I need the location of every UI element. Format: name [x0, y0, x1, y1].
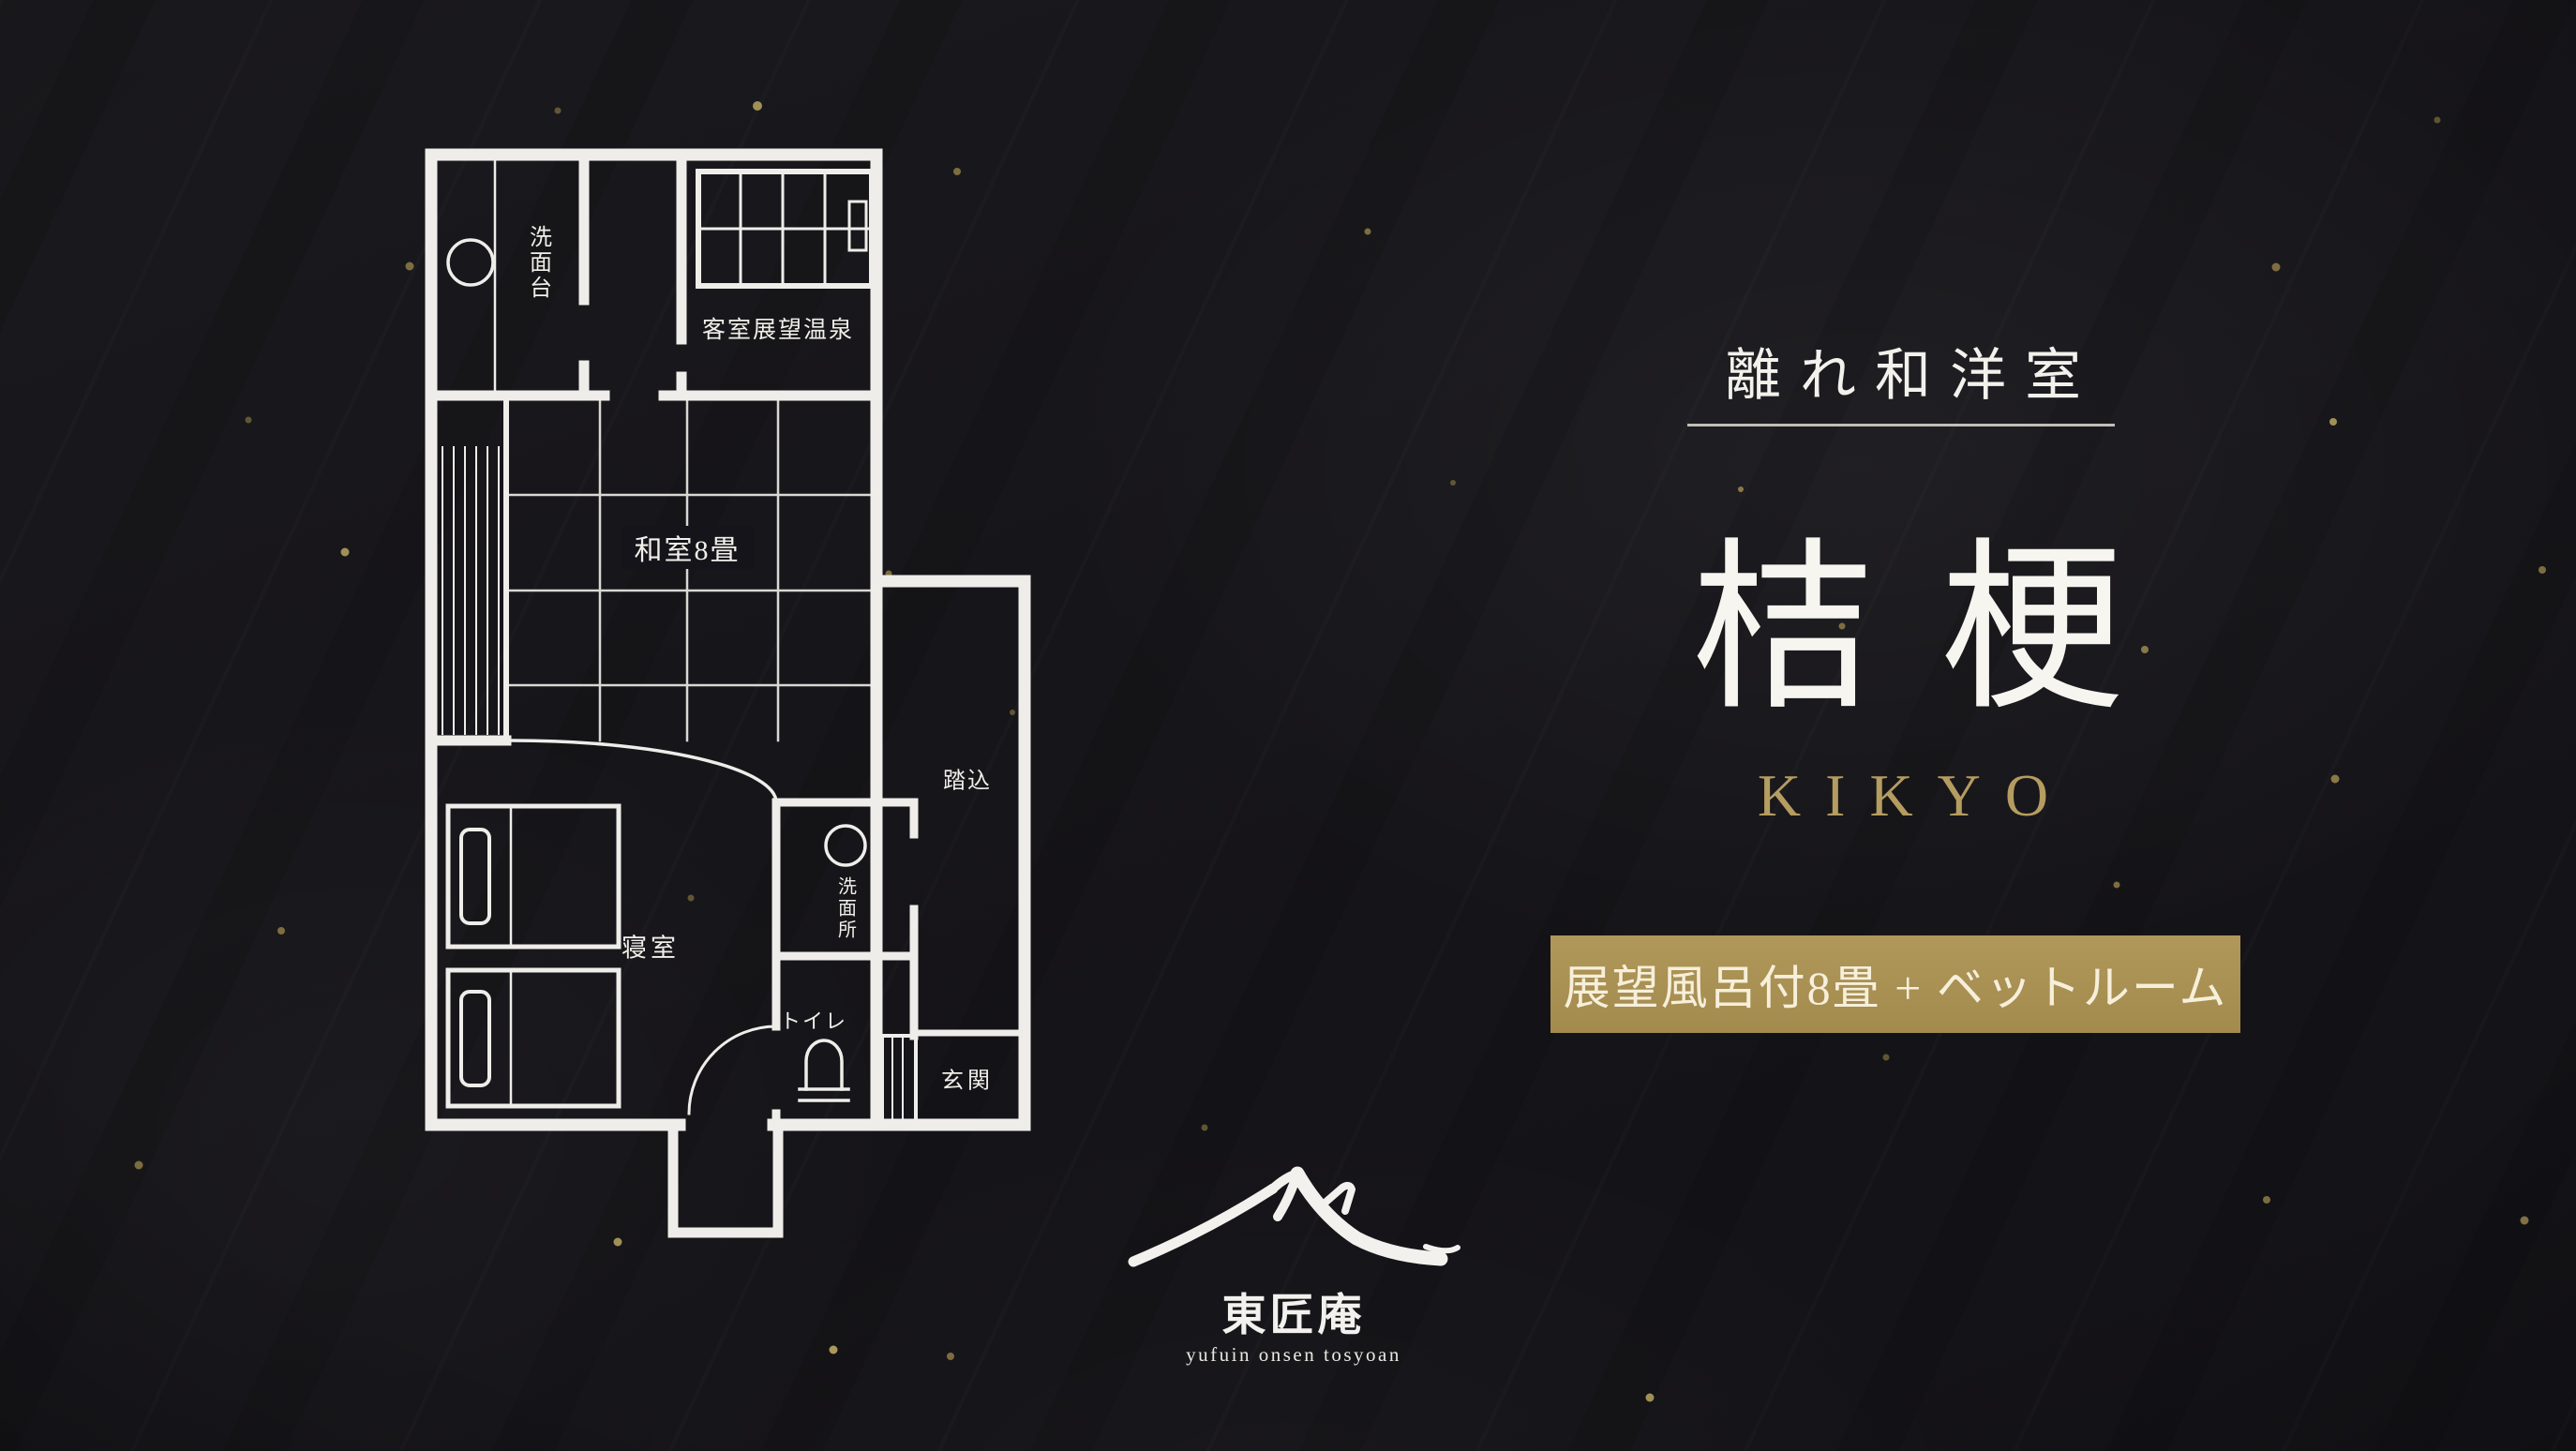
page-background: 洗面台 客室展望温泉 和室8畳 寝室 洗面所 トイレ 踏込 玄関 離れ和洋室 桔… — [0, 0, 2576, 1451]
amenity-badge-label: 展望風呂付8畳 + ベットルーム — [1564, 950, 2228, 1018]
sink-icon — [448, 240, 493, 285]
closet-strips — [431, 396, 506, 740]
label-toilet: トイレ — [780, 1005, 847, 1035]
floor-plan-drawing — [412, 131, 1031, 1247]
entry-wing-walls — [876, 581, 1025, 1125]
room-category: 離れ和洋室 — [1683, 330, 2123, 411]
brand-name-romaji: yufuin onsen tosyoan — [1153, 1343, 1434, 1367]
toilet-icon — [800, 1040, 848, 1100]
label-japanese-room: 和室8畳 — [635, 527, 741, 568]
porch-walls — [673, 1125, 778, 1233]
label-entrance: 玄関 — [941, 1062, 994, 1095]
brand-name-kanji: 東匠庵 — [1153, 1279, 1434, 1343]
mountain-logo-icon — [1120, 1155, 1467, 1281]
floor-plan: 洗面台 客室展望温泉 和室8畳 寝室 洗面所 トイレ 踏込 玄関 — [412, 131, 1031, 1247]
label-entry-step: 踏込 — [943, 762, 992, 795]
label-bedroom: 寝室 — [622, 928, 680, 965]
label-washroom: 洗面所 — [832, 876, 860, 941]
sink-icon — [826, 826, 865, 865]
amenity-badge: 展望風呂付8畳 + ベットルーム — [1550, 935, 2240, 1033]
room-name: 桔梗 — [1551, 525, 2264, 736]
door-arc-icon — [689, 1026, 776, 1114]
bed-icon — [448, 970, 619, 1106]
brand-logo: 東匠庵 yufuin onsen tosyoan — [1120, 1155, 1467, 1380]
door-arc-icon — [513, 740, 776, 802]
bed-icon — [448, 806, 619, 947]
room-name-romaji: KIKYO — [1683, 761, 2123, 830]
entrance-door-icon — [882, 1036, 916, 1123]
divider-line — [1687, 424, 2115, 426]
label-guest-room-view-bath: 客室展望温泉 — [702, 311, 854, 345]
label-washstand: 洗面台 — [522, 225, 555, 301]
bathtub-icon — [698, 172, 872, 286]
